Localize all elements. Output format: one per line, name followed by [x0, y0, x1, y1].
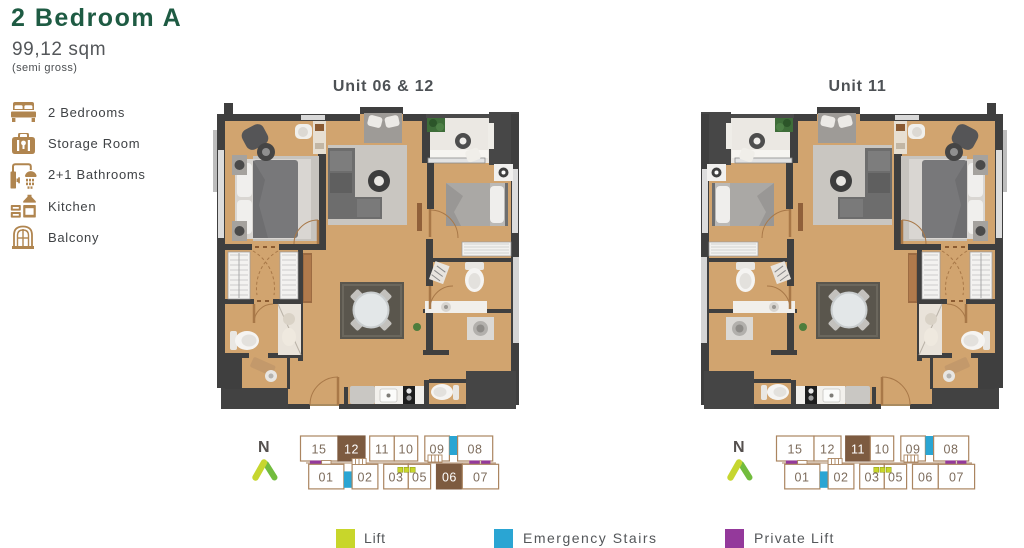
svg-text:06: 06	[442, 471, 457, 485]
svg-text:15: 15	[312, 443, 327, 457]
svg-text:10: 10	[875, 443, 890, 457]
svg-text:01: 01	[319, 471, 334, 485]
svg-text:03: 03	[865, 471, 880, 485]
svg-text:12: 12	[820, 443, 835, 457]
svg-text:07: 07	[949, 471, 964, 485]
svg-text:09: 09	[906, 443, 921, 457]
svg-text:05: 05	[412, 471, 427, 485]
svg-text:02: 02	[834, 471, 849, 485]
svg-text:11: 11	[375, 443, 389, 457]
svg-text:15: 15	[788, 443, 803, 457]
svg-text:06: 06	[918, 471, 933, 485]
svg-text:01: 01	[795, 471, 810, 485]
svg-text:03: 03	[389, 471, 404, 485]
svg-text:07: 07	[473, 471, 488, 485]
svg-text:10: 10	[399, 443, 414, 457]
svg-text:09: 09	[430, 443, 445, 457]
svg-text:08: 08	[468, 443, 483, 457]
svg-text:02: 02	[358, 471, 373, 485]
svg-text:08: 08	[944, 443, 959, 457]
svg-text:05: 05	[888, 471, 903, 485]
svg-text:11: 11	[851, 443, 865, 457]
svg-text:12: 12	[344, 443, 359, 457]
